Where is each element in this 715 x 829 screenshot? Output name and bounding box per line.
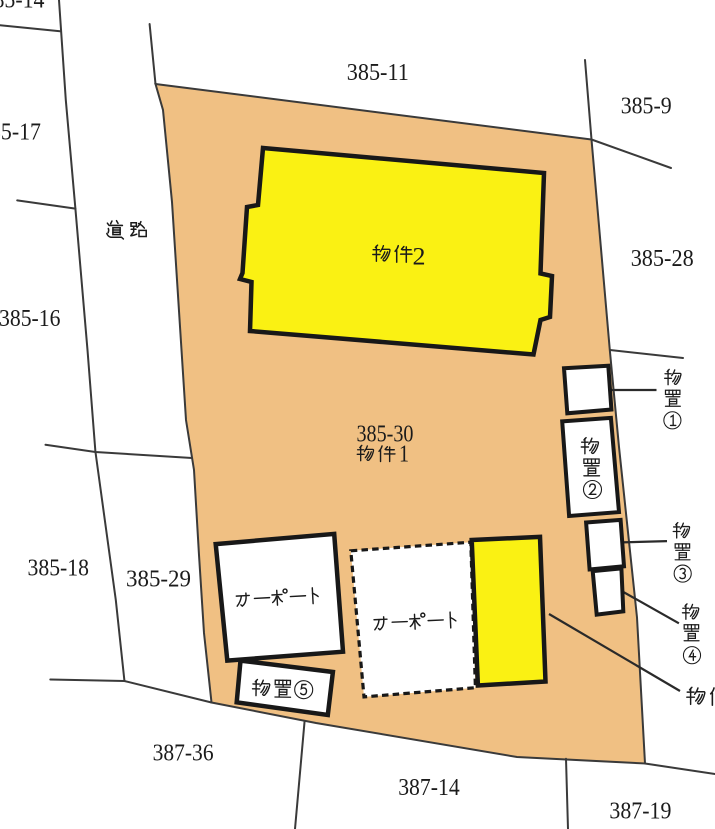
svg-text:385-28: 385-28 [631, 246, 694, 272]
svg-text:1: 1 [399, 442, 409, 468]
svg-text:385-14: 385-14 [0, 0, 45, 14]
svg-text:385-11: 385-11 [347, 60, 409, 86]
svg-text:385-9: 385-9 [621, 94, 672, 120]
svg-text:385-18: 385-18 [28, 556, 90, 582]
svg-text:385-29: 385-29 [126, 567, 191, 593]
svg-text:387-36: 387-36 [153, 741, 214, 767]
svg-text:2: 2 [413, 244, 426, 271]
svg-text:385-16: 385-16 [0, 306, 61, 332]
svg-text:385-17: 385-17 [0, 120, 41, 146]
svg-text:387-14: 387-14 [398, 775, 460, 801]
svg-text:387-19: 387-19 [609, 799, 671, 825]
